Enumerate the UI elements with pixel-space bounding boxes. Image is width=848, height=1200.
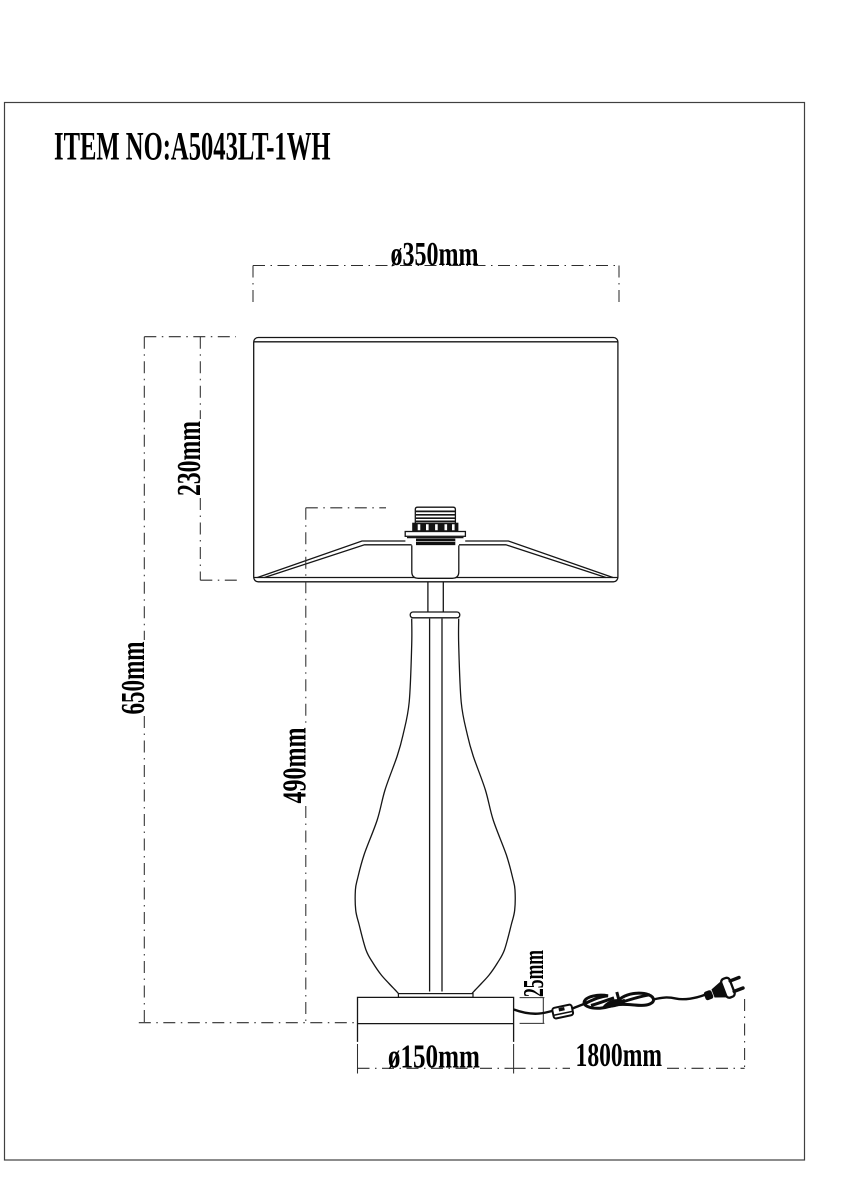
svg-text:25mm: 25mm: [518, 950, 550, 997]
svg-text:1800mm: 1800mm: [576, 1037, 663, 1074]
svg-text:ø150mm: ø150mm: [388, 1039, 480, 1076]
svg-text:650mm: 650mm: [115, 641, 152, 714]
svg-text:230mm: 230mm: [171, 421, 208, 496]
svg-text:490mm: 490mm: [276, 727, 313, 803]
svg-text:ITEM NO:A5043LT-1WH: ITEM NO:A5043LT-1WH: [54, 124, 331, 169]
svg-text:ø350mm: ø350mm: [391, 236, 479, 273]
